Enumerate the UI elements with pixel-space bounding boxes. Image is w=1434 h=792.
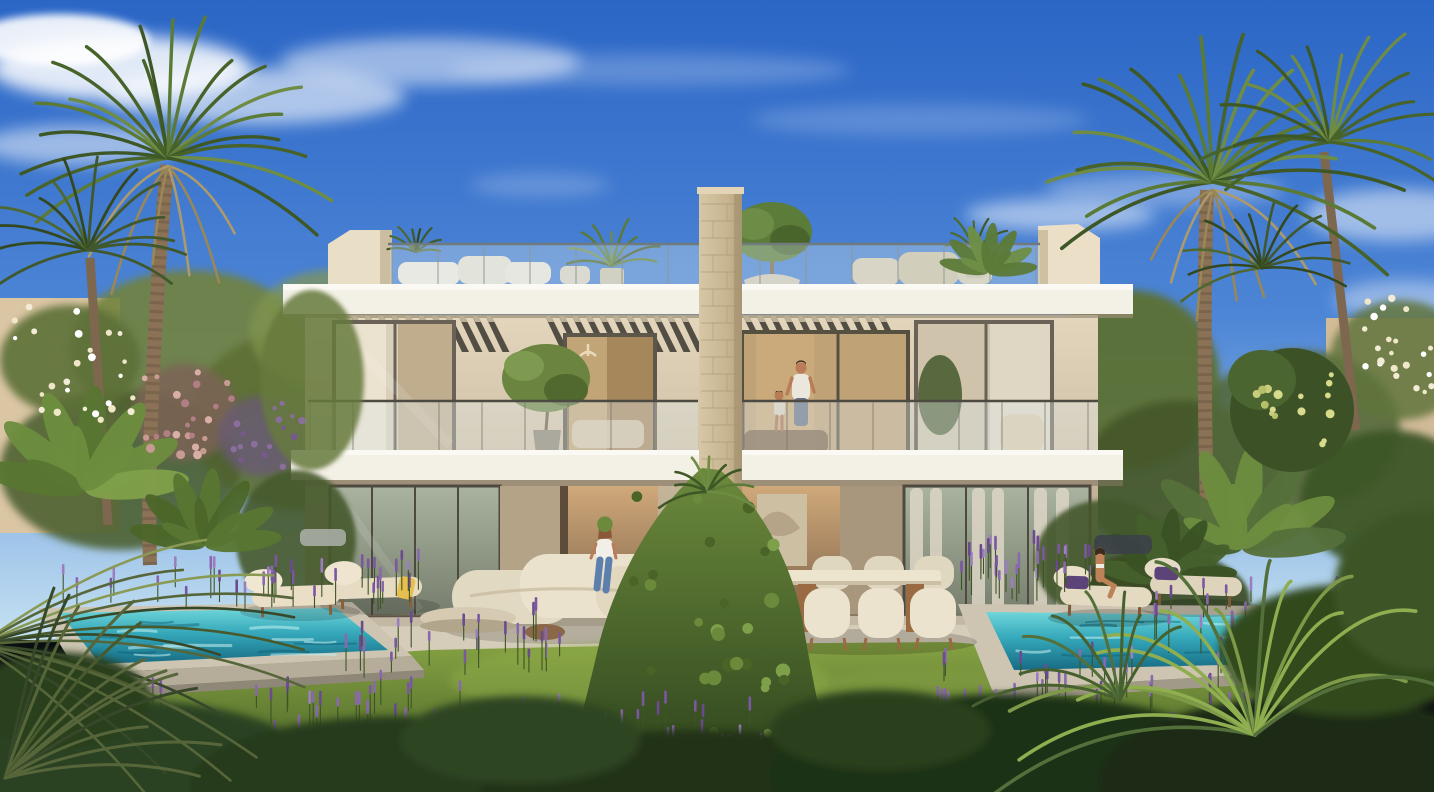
villa-render (0, 0, 1434, 792)
car-left (300, 529, 346, 546)
